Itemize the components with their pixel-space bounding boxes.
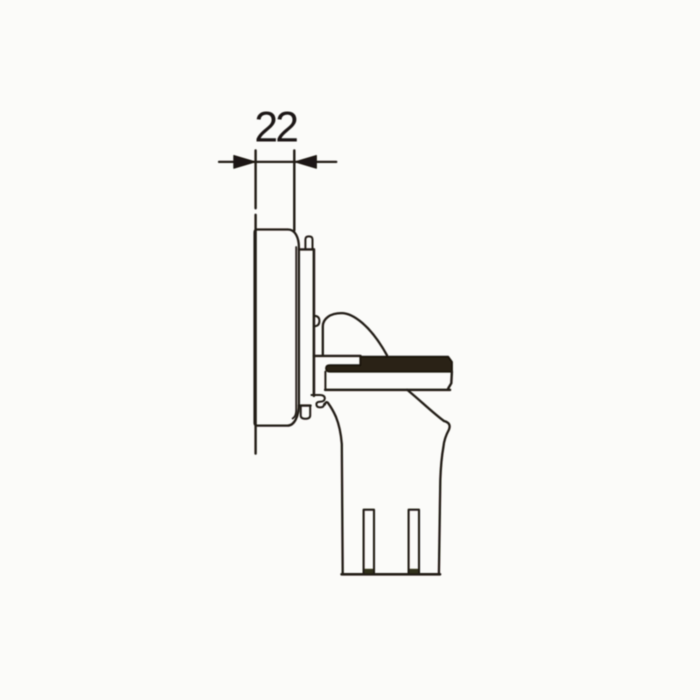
svg-text:22: 22 [254,103,297,151]
